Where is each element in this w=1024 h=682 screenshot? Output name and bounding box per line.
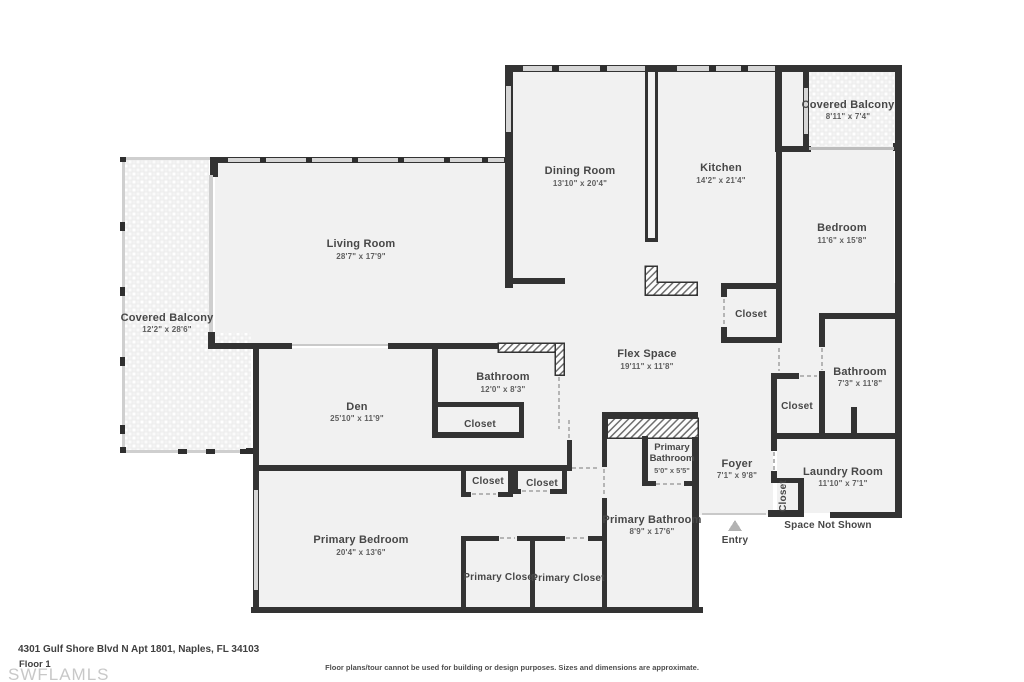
label-entry: Entry (722, 535, 749, 546)
label-primary-closet-2: Primary Closet (531, 573, 605, 584)
floor-plan-svg: Dining Room 13'10" x 20'4" Kitchen 14'2"… (0, 0, 1024, 682)
dims-covered-balcony-right: 8'11" x 7'4" (826, 112, 871, 121)
dims-kitchen: 14'2" x 21'4" (696, 176, 746, 185)
dims-covered-balcony-left: 12'2" x 28'6" (142, 325, 192, 334)
dims-primary-bathroom: 8'9" x 17'6" (630, 527, 675, 536)
label-closet-bathroom: Closet (464, 419, 496, 430)
dims-bathroom-center: 12'0" x 8'3" (481, 385, 526, 394)
watermark-text: SWFLAMLS (8, 665, 110, 682)
label-primary-bedroom: Primary Bedroom (313, 534, 408, 546)
label-closet-kitchen: Closet (735, 309, 767, 320)
dims-primary-bedroom: 20'4" x 13'6" (336, 548, 386, 557)
label-dining-room: Dining Room (545, 165, 616, 177)
label-living-room: Living Room (327, 238, 396, 250)
floor-plan-page: Dining Room 13'10" x 20'4" Kitchen 14'2"… (0, 0, 1024, 682)
label-closet-laundry: Closet (778, 480, 789, 512)
dims-flex-space: 19'11" x 11'8" (620, 362, 673, 371)
hall-hatch-wall (555, 343, 564, 375)
label-bedroom: Bedroom (817, 222, 867, 234)
label-space-not-shown: Space Not Shown (784, 520, 871, 531)
label-covered-balcony-left: Covered Balcony (121, 312, 215, 324)
dims-bedroom: 11'6" x 15'8" (817, 236, 866, 245)
dims-primary-bath-small: 5'0" x 5'5" (654, 466, 690, 475)
label-primary-bath-small-2: Bathroom (650, 453, 695, 464)
dims-foyer: 7'1" x 9'8" (717, 471, 757, 480)
label-foyer: Foyer (722, 458, 753, 470)
label-bathroom-center: Bathroom (476, 371, 530, 383)
dims-bathroom-right: 7'3" x 11'8" (838, 379, 883, 388)
label-primary-bathroom: Primary Bathroom (602, 514, 701, 526)
entry-arrow-icon (728, 520, 742, 531)
label-covered-balcony-right: Covered Balcony (802, 99, 896, 111)
label-bathroom-right: Bathroom (833, 366, 887, 378)
label-closet-hall-2: Closet (526, 478, 558, 489)
dims-living-room: 28'7" x 17'9" (336, 252, 386, 261)
label-kitchen: Kitchen (700, 162, 742, 174)
disclaimer-text: Floor plans/tour cannot be used for buil… (325, 663, 699, 672)
label-primary-bath-small-1: Primary (654, 442, 690, 453)
dims-den: 25'10" x 11'9" (330, 414, 384, 423)
address-text: 4301 Gulf Shore Blvd N Apt 1801, Naples,… (18, 644, 260, 655)
label-primary-closet-1: Primary Closet (463, 572, 537, 583)
dims-dining-room: 13'10" x 20'4" (553, 179, 607, 188)
label-closet-hall-1: Closet (472, 476, 504, 487)
label-den: Den (346, 401, 367, 413)
label-laundry-room: Laundry Room (803, 466, 883, 478)
label-flex-space: Flex Space (617, 348, 676, 360)
footer: 4301 Gulf Shore Blvd N Apt 1801, Naples,… (8, 644, 699, 682)
label-closet-midright: Closet (781, 401, 813, 412)
dims-laundry-room: 11'10" x 7'1" (818, 479, 867, 488)
primary-bath-hatch-wall (607, 418, 698, 438)
bathroom-hatch-wall (498, 343, 564, 352)
